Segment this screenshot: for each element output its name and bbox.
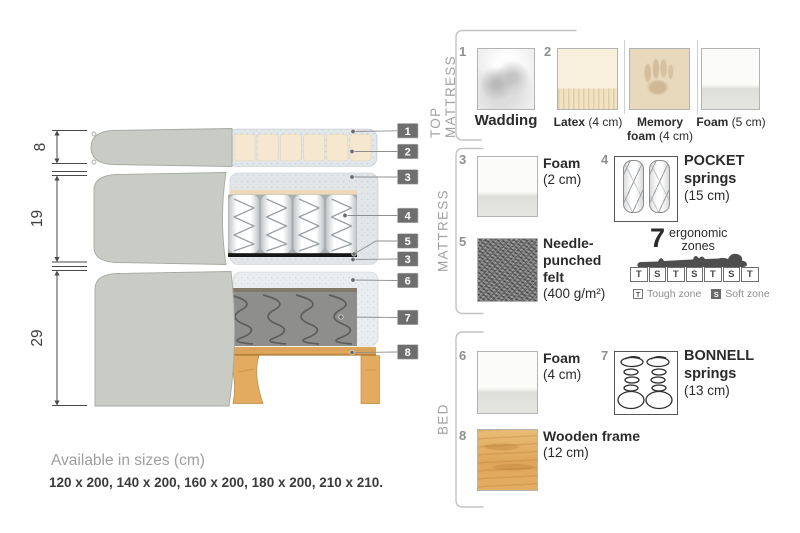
item-number-foam2: 3 [459, 152, 466, 167]
wadding-swatch [477, 48, 535, 110]
divider [697, 40, 698, 114]
item-number-latex: 2 [544, 44, 551, 59]
pocket-springs-size: (15 cm) [684, 188, 756, 204]
wadding-label: Wadding [475, 112, 538, 129]
latex-label: Latex [554, 115, 585, 129]
soft-zone-label: Soft zone [725, 288, 769, 300]
item-number-wood: 8 [459, 428, 466, 443]
callout-1: 1 [405, 126, 411, 138]
foam2-size: (2 cm) [543, 172, 613, 188]
top-mattress-cover [91, 129, 232, 167]
latex-swatch [557, 48, 618, 110]
zone-cell: T [741, 267, 759, 282]
dim-top-mattress: 8 [32, 143, 49, 152]
bed-skirt-cover [95, 272, 235, 407]
sleeping-person-icon [636, 251, 756, 268]
piping-dot [92, 132, 96, 136]
felt-layer [228, 253, 357, 257]
zone-cell: S [649, 267, 667, 282]
memory-foam-size: (4 cm) [659, 129, 693, 143]
mattress-cover [94, 173, 226, 265]
dimension-annotations [52, 131, 87, 406]
item-number-pocket: 4 [601, 152, 608, 167]
foam5-size: (5 cm) [732, 115, 766, 129]
wood-label: Wooden frame [543, 428, 673, 445]
bonnell-top-edge [224, 288, 357, 292]
zone-legend: T Tough zone S Soft zone [633, 288, 770, 300]
felt-size: (400 g/m²) [543, 286, 615, 302]
felt-swatch [477, 238, 538, 302]
pocket-springs-label: POCKET springs [684, 153, 756, 188]
pocket-spring-pouch [623, 160, 644, 213]
section-title-bed: BED [434, 334, 452, 505]
zone-cell: S [686, 267, 704, 282]
mattress-infographic-page: { "diagram": { "dims": [ {"value":"8"}, … [0, 0, 800, 533]
bed-layer-group [95, 272, 380, 407]
foam5-label: Foam [696, 115, 728, 129]
divider [624, 40, 625, 114]
wood-swatch [477, 429, 538, 491]
foam5-swatch [701, 48, 760, 110]
available-sizes-list: 120 x 200, 140 x 200, 160 x 200, 180 x 2… [49, 475, 383, 490]
dim-bed: 29 [29, 329, 46, 346]
dim-mattress: 19 [29, 210, 46, 227]
ergonomic-zones-header: 7 ergonomic zones [650, 227, 727, 253]
section-title-mattress: MATTRESS [434, 150, 452, 312]
callout-3b: 3 [405, 254, 411, 266]
item-number-foam4: 6 [459, 348, 466, 363]
bonnell-springs-size: (13 cm) [684, 383, 762, 399]
callout-5: 5 [405, 236, 411, 248]
latex-size: (4 cm) [588, 115, 622, 129]
tough-zone-key: T [633, 289, 643, 299]
top-mattress-layer-group [91, 129, 377, 167]
ergonomic-zones-number: 7 [650, 227, 665, 250]
section-title-top-mattress: TOP MATTRESS [434, 32, 452, 138]
tough-zone-label: Tough zone [647, 288, 701, 300]
zone-cell: T [630, 267, 648, 282]
item-number-bonnell: 7 [601, 348, 608, 363]
pocket-springs-swatch [614, 156, 678, 222]
wood-size: (12 cm) [543, 445, 673, 461]
callout-boxes: 1 2 3 4 5 3 6 7 8 [398, 124, 419, 360]
callout-3: 3 [405, 172, 411, 184]
zone-cell: S [723, 267, 741, 282]
bonnell-springs-swatch [614, 351, 678, 415]
bonnell-springs-label: BONNELL springs [684, 348, 762, 383]
ergonomic-caption-1: ergonomic [669, 226, 727, 240]
foam4-size: (4 cm) [543, 367, 613, 383]
zone-cell: T [667, 267, 685, 282]
callout-6: 6 [405, 276, 411, 288]
available-sizes-title: Available in sizes (cm) [51, 452, 205, 470]
memory-foam-swatch [629, 48, 690, 110]
soft-zone-key: S [711, 289, 721, 299]
felt-label: Needle-punched felt [543, 235, 615, 286]
callout-2: 2 [405, 147, 411, 159]
item-number-wadding: 1 [459, 44, 466, 59]
bonnell-coil-drawing [615, 352, 677, 414]
ergonomic-zone-row: T S T S T S T [630, 267, 759, 282]
mattress-layer-group [94, 173, 378, 265]
item-number-felt: 5 [459, 234, 466, 249]
zone-cell: T [704, 267, 722, 282]
foam2-swatch [477, 156, 538, 217]
foam4-swatch [477, 351, 538, 414]
piping-dot [92, 160, 96, 164]
wooden-frame [224, 347, 380, 404]
callout-7: 7 [405, 313, 411, 325]
foam-top-layer [230, 190, 357, 195]
pocket-spring-pouch [649, 160, 670, 213]
bed-leg-right [361, 356, 380, 404]
callout-8: 8 [405, 347, 411, 359]
callout-4: 4 [405, 211, 412, 223]
